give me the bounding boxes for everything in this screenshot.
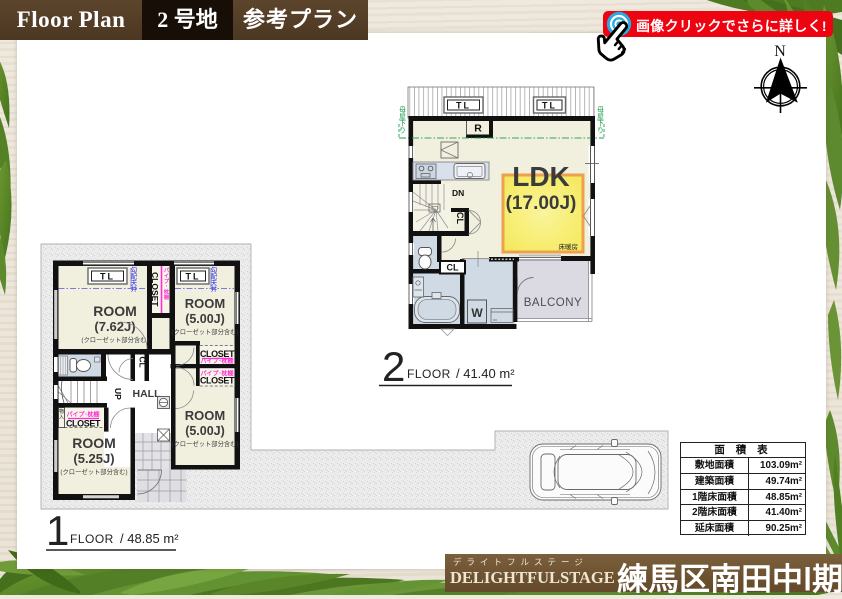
svg-text:HALL: HALL	[133, 388, 162, 400]
svg-text:(7.62J): (7.62J)	[94, 319, 135, 334]
svg-text:/ 41.40 m²: / 41.40 m²	[456, 366, 515, 381]
svg-text:CL: CL	[138, 356, 148, 367]
svg-text:母屋下り: 母屋下り	[597, 106, 604, 134]
svg-text:/ 48.85 m²: / 48.85 m²	[120, 531, 179, 546]
svg-text:DN: DN	[452, 188, 464, 198]
svg-text:ROOM: ROOM	[72, 435, 116, 451]
svg-text:パイプ･枕棚: パイプ･枕棚	[66, 411, 99, 419]
svg-text:(17.00J): (17.00J)	[506, 193, 577, 214]
svg-text:CLOSET: CLOSET	[200, 349, 235, 359]
svg-text:LDK: LDK	[512, 161, 570, 192]
svg-text:N: N	[774, 43, 786, 60]
svg-text:CLOSET: CLOSET	[66, 419, 101, 429]
svg-text:勾配天井: 勾配天井	[131, 265, 138, 293]
svg-text:ROOM: ROOM	[185, 296, 225, 311]
svg-text:TL: TL	[542, 101, 557, 111]
svg-text:パイプ･枕棚: パイプ･枕棚	[200, 357, 233, 365]
svg-text:FLOOR: FLOOR	[70, 532, 114, 546]
svg-text:CL: CL	[447, 263, 459, 273]
svg-text:R: R	[474, 123, 482, 135]
svg-text:(5.00J): (5.00J)	[185, 424, 225, 438]
svg-text:(クローゼット部分含む): (クローゼット部分含む)	[171, 327, 238, 336]
svg-text:1: 1	[46, 507, 69, 554]
svg-text:CL: CL	[455, 212, 465, 224]
svg-text:CLOSET: CLOSET	[200, 376, 235, 386]
svg-text:床暖房: 床暖房	[559, 242, 579, 251]
svg-text:物入: 物入	[59, 408, 64, 421]
svg-text:(クローゼット部分含む): (クローゼット部分含む)	[60, 467, 127, 476]
svg-text:勾配天井: 勾配天井	[211, 265, 218, 293]
svg-text:BALCONY: BALCONY	[524, 297, 582, 309]
svg-text:母屋下り: 母屋下り	[399, 106, 406, 134]
svg-text:TL: TL	[456, 101, 471, 111]
svg-text:ROOM: ROOM	[185, 408, 225, 423]
svg-text:パイプ･枕棚: パイプ･枕棚	[164, 266, 170, 301]
svg-text:TL: TL	[186, 272, 201, 282]
svg-text:TL: TL	[100, 272, 115, 282]
svg-text:(クローゼット部分含む): (クローゼット部分含む)	[81, 335, 148, 344]
svg-text:FLOOR: FLOOR	[407, 367, 451, 381]
svg-text:2: 2	[382, 343, 405, 390]
svg-text:(クローゼット部分含む): (クローゼット部分含む)	[171, 439, 238, 448]
svg-text:ROOM: ROOM	[93, 303, 137, 319]
svg-text:(5.00J): (5.00J)	[185, 312, 225, 326]
svg-text:(5.25J): (5.25J)	[73, 451, 114, 466]
svg-text:CLOSET: CLOSET	[150, 272, 160, 307]
svg-text:W: W	[471, 306, 483, 320]
svg-text:UP: UP	[113, 388, 123, 400]
